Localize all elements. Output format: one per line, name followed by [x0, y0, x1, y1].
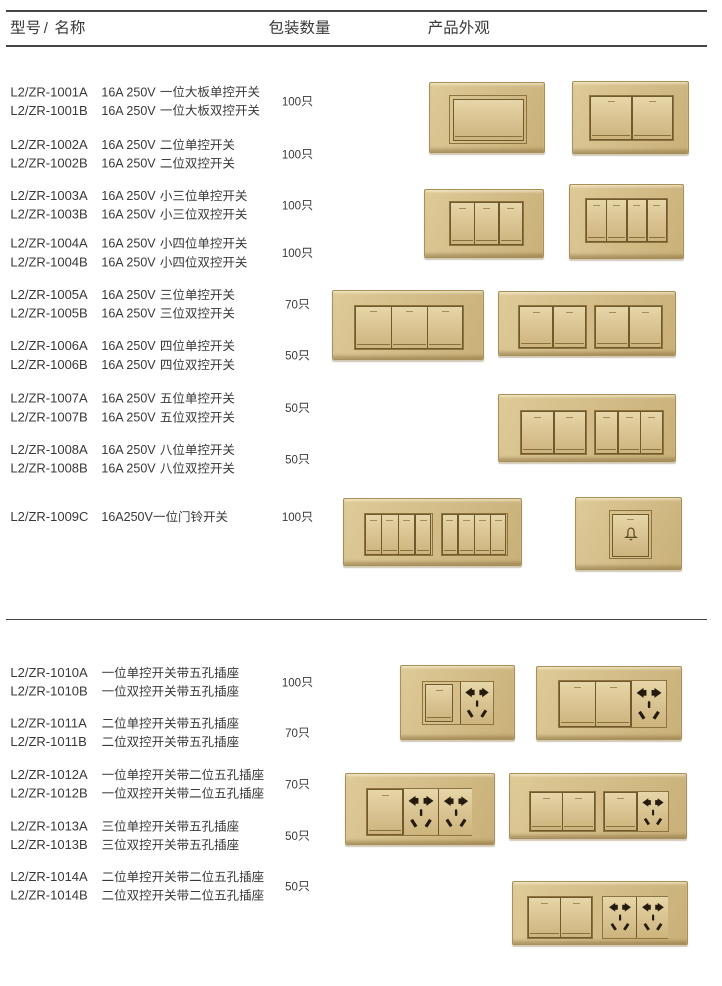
svg-text:100: 100 [282, 677, 301, 689]
svg-text:70: 70 [285, 779, 298, 791]
svg-text:16A 250V: 16A 250V [101, 339, 156, 353]
svg-text:16A 250V: 16A 250V [101, 256, 156, 270]
svg-text:/: / [44, 20, 49, 37]
svg-text:L2/ZR-1012A: L2/ZR-1012A [10, 767, 88, 782]
svg-text:L2/ZR-1001B: L2/ZR-1001B [10, 103, 87, 118]
svg-text:16A 250V: 16A 250V [101, 358, 156, 372]
svg-text:L2/ZR-1007A: L2/ZR-1007A [10, 391, 88, 406]
svg-text:L2/ZR-1010A: L2/ZR-1010A [10, 665, 88, 680]
svg-text:70: 70 [285, 299, 298, 311]
svg-text:16A 250V: 16A 250V [101, 411, 156, 425]
svg-text:50: 50 [285, 881, 298, 893]
svg-text:L2/ZR-1005A: L2/ZR-1005A [10, 287, 88, 302]
svg-text:100: 100 [282, 96, 301, 108]
svg-text:16A 250V: 16A 250V [101, 392, 156, 406]
svg-text:50: 50 [285, 831, 298, 843]
svg-text:16A250V: 16A250V [101, 510, 153, 524]
svg-text:L2/ZR-1003A: L2/ZR-1003A [10, 188, 88, 203]
svg-text:L2/ZR-1010B: L2/ZR-1010B [10, 684, 87, 699]
svg-text:L2/ZR-1005B: L2/ZR-1005B [10, 306, 87, 321]
svg-text:16A 250V: 16A 250V [101, 307, 156, 321]
svg-text:L2/ZR-1004B: L2/ZR-1004B [10, 255, 87, 270]
svg-text:100: 100 [282, 200, 301, 212]
svg-text:L2/ZR-1013B: L2/ZR-1013B [10, 837, 87, 852]
svg-text:16A 250V: 16A 250V [101, 443, 156, 457]
svg-text:16A 250V: 16A 250V [101, 104, 156, 118]
svg-text:100: 100 [282, 248, 301, 260]
svg-text:70: 70 [285, 728, 298, 740]
svg-text:L2/ZR-1014A: L2/ZR-1014A [10, 869, 88, 884]
svg-text:L2/ZR-1013A: L2/ZR-1013A [10, 819, 88, 834]
svg-text:L2/ZR-1011B: L2/ZR-1011B [10, 734, 86, 749]
svg-text:L2/ZR-1004A: L2/ZR-1004A [10, 236, 88, 251]
svg-text:16A 250V: 16A 250V [101, 189, 156, 203]
svg-text:L2/ZR-1009C: L2/ZR-1009C [10, 509, 88, 524]
svg-text:16A 250V: 16A 250V [101, 288, 156, 302]
svg-text:16A 250V: 16A 250V [101, 157, 156, 171]
svg-text:50: 50 [285, 454, 298, 466]
svg-text:L2/ZR-1008B: L2/ZR-1008B [10, 461, 87, 476]
svg-text:L2/ZR-1002A: L2/ZR-1002A [10, 137, 88, 152]
svg-text:L2/ZR-1001A: L2/ZR-1001A [10, 84, 88, 99]
svg-text:L2/ZR-1006A: L2/ZR-1006A [10, 338, 88, 353]
svg-text:L2/ZR-1006B: L2/ZR-1006B [10, 357, 87, 372]
svg-text:L2/ZR-1008A: L2/ZR-1008A [10, 442, 88, 457]
svg-text:16A 250V: 16A 250V [101, 85, 156, 99]
svg-text:L2/ZR-1003B: L2/ZR-1003B [10, 207, 87, 222]
svg-text:L2/ZR-1014B: L2/ZR-1014B [10, 888, 87, 903]
svg-text:L2/ZR-1011A: L2/ZR-1011A [10, 716, 87, 731]
svg-text:L2/ZR-1007B: L2/ZR-1007B [10, 410, 87, 425]
svg-text:L2/ZR-1002B: L2/ZR-1002B [10, 156, 87, 171]
svg-text:L2/ZR-1012B: L2/ZR-1012B [10, 786, 87, 801]
svg-text:100: 100 [282, 512, 301, 524]
svg-text:16A 250V: 16A 250V [101, 138, 156, 152]
svg-text:16A 250V: 16A 250V [101, 462, 156, 476]
svg-text:16A 250V: 16A 250V [101, 237, 156, 251]
svg-text:16A 250V: 16A 250V [101, 208, 156, 222]
svg-text:50: 50 [285, 351, 298, 363]
svg-text:100: 100 [282, 149, 301, 161]
svg-text:50: 50 [285, 403, 298, 415]
